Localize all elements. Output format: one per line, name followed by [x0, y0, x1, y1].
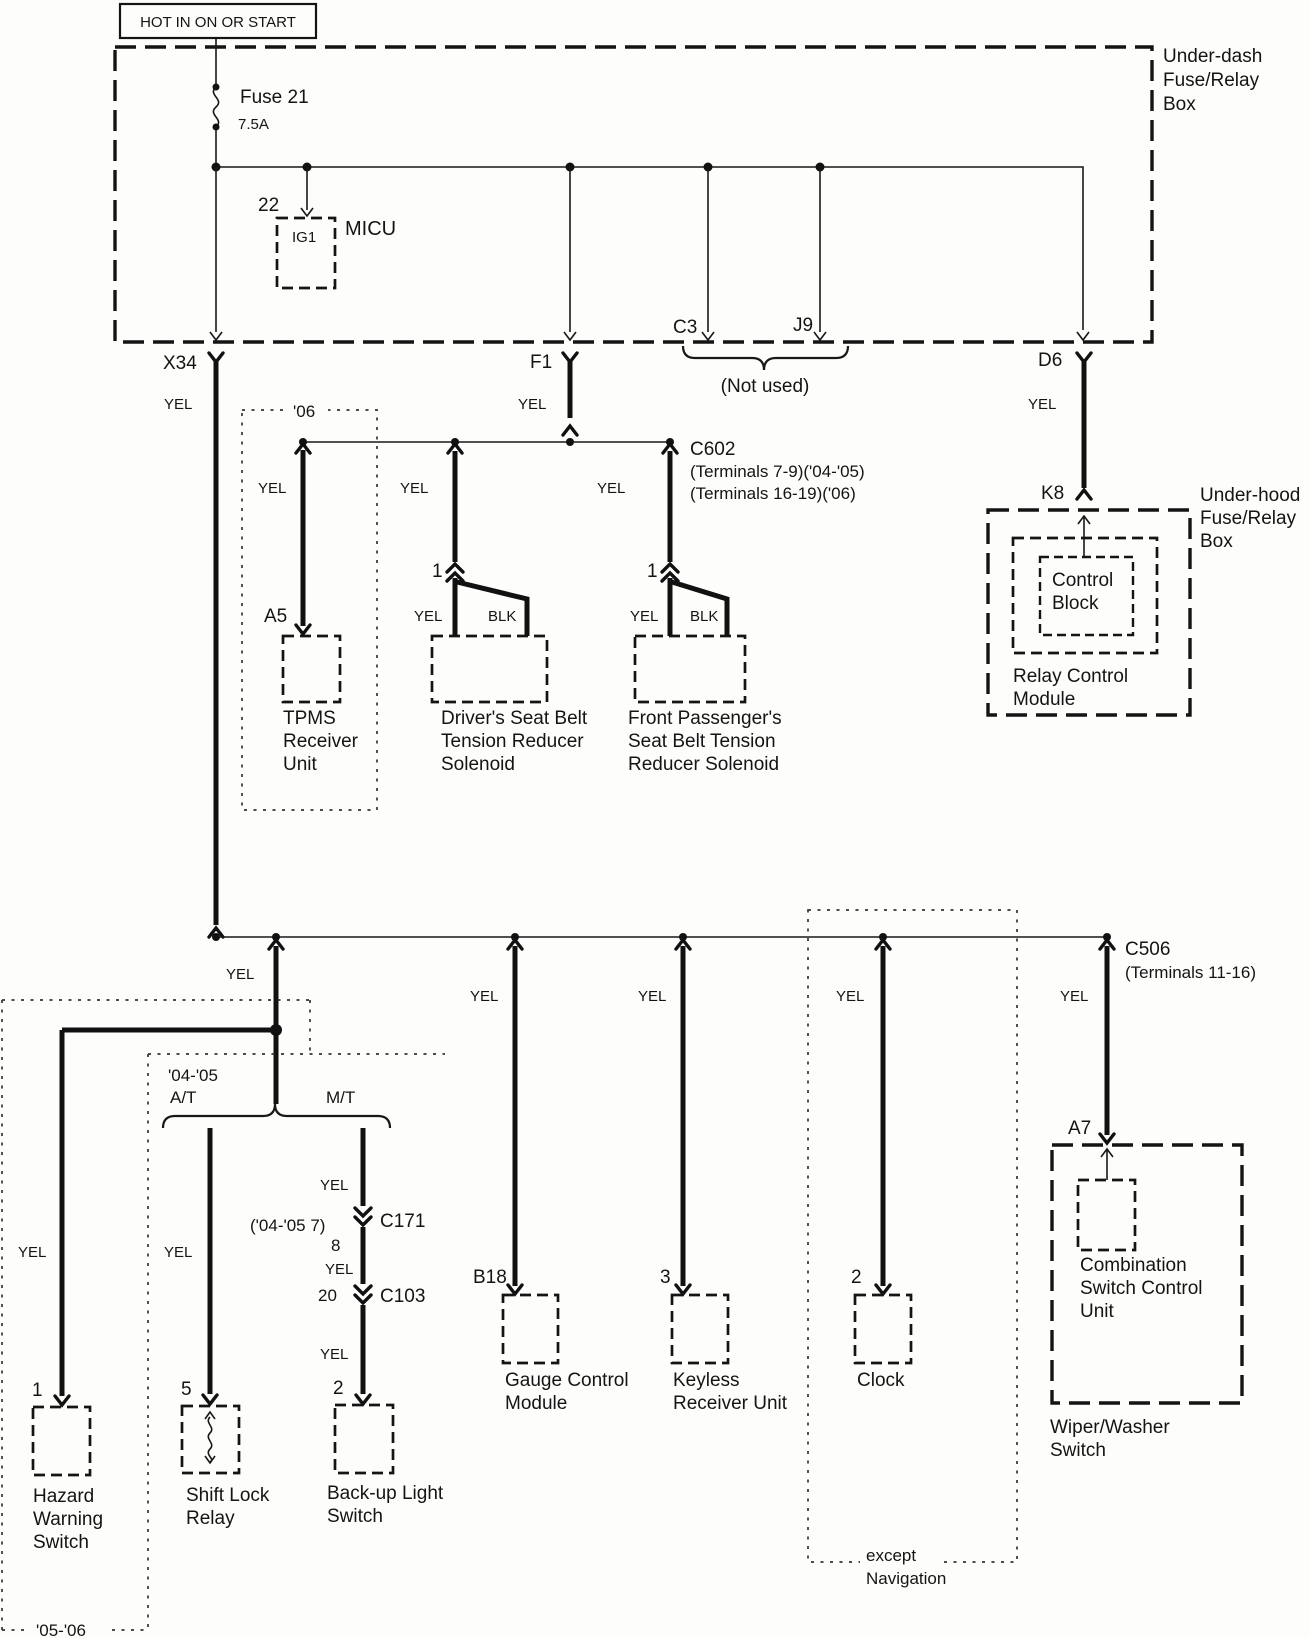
c103-pin-20: 20: [318, 1286, 337, 1305]
hazard-name-1: Hazard: [33, 1486, 94, 1507]
wire-color: YEL: [597, 480, 625, 497]
split-brace: [163, 1104, 390, 1128]
tpms-pin: A5: [264, 606, 287, 627]
wire-color: YEL: [164, 396, 192, 413]
wire-color: YEL: [836, 988, 864, 1005]
hazard-pin: 1: [32, 1380, 43, 1401]
c506-terminals: (Terminals 11-16): [1125, 963, 1256, 982]
year-0405-label: '04-'05: [168, 1066, 218, 1085]
connector-f1: F1: [530, 352, 552, 373]
wire-color: YEL: [325, 1261, 353, 1278]
year-06-label: '06: [293, 402, 315, 421]
connector-fork-icon: [508, 1285, 522, 1294]
arrow-down-icon: [814, 332, 826, 340]
except-nav-label-1: except: [866, 1546, 916, 1565]
wire-color: YEL: [320, 1177, 348, 1194]
junction-dot: [212, 933, 220, 941]
inline-connector-icon: [355, 1286, 371, 1294]
underhood-label-2: Fuse/Relay: [1200, 508, 1297, 529]
inline-connector-icon: [355, 1208, 371, 1216]
tpms-box: [283, 636, 340, 702]
wire-color: BLK: [488, 608, 516, 625]
not-used-brace: [683, 346, 848, 370]
underhood-label-1: Under-hood: [1200, 485, 1300, 506]
keyless-box: [672, 1295, 728, 1363]
mt-label: M/T: [326, 1088, 355, 1107]
at-label: A/T: [170, 1088, 196, 1107]
wire-color: YEL: [1028, 396, 1056, 413]
arrow-down-icon: [702, 332, 714, 340]
clock-name: Clock: [857, 1370, 905, 1391]
hot-feed-label: HOT IN ON OR START: [140, 14, 296, 31]
connector-fork-icon: [1077, 490, 1091, 499]
except-nav-label-2: Navigation: [866, 1569, 946, 1588]
passenger-solenoid-name-1: Front Passenger's: [628, 708, 782, 729]
connector-c103: C103: [380, 1286, 425, 1307]
driver-solenoid-name-2: Tension Reducer: [441, 731, 584, 752]
c171-note: ('04-'05 7): [250, 1216, 325, 1235]
wire-color: YEL: [470, 988, 498, 1005]
year-0506-label: '05-'06: [36, 1621, 86, 1638]
c602-terminals-1: (Terminals 7-9)('04-'05): [690, 462, 865, 481]
connector-c506: C506: [1125, 939, 1170, 960]
wire-color: YEL: [320, 1346, 348, 1363]
combo-name-1: Combination: [1080, 1255, 1187, 1276]
clock-box: [855, 1295, 911, 1363]
micu-pin: 22: [258, 195, 279, 216]
relay-module-label-2: Module: [1013, 689, 1075, 710]
passenger-solenoid-box: [635, 636, 745, 702]
driver-solenoid-name-1: Driver's Seat Belt: [441, 708, 588, 729]
wiring-diagram-page: HOT IN ON OR START Under-dash Fuse/Relay…: [0, 0, 1310, 1638]
fuse-rating: 7.5A: [238, 116, 269, 133]
wire-color: YEL: [638, 988, 666, 1005]
fuse-symbol: [213, 87, 218, 127]
driver-solenoid-pin: 1: [432, 561, 443, 582]
backup-name-2: Switch: [327, 1506, 383, 1527]
shiftlock-name-1: Shift Lock: [186, 1485, 270, 1506]
passenger-solenoid-name-2: Seat Belt Tension: [628, 731, 776, 752]
shiftlock-name-2: Relay: [186, 1508, 235, 1529]
wire-color: YEL: [630, 608, 658, 625]
wire-color: YEL: [400, 480, 428, 497]
passenger-solenoid-pin: 1: [647, 561, 658, 582]
micu-cavity: IG1: [292, 229, 316, 246]
passenger-solenoid-name-3: Reducer Solenoid: [628, 754, 779, 775]
keyless-pin: 3: [660, 1267, 671, 1288]
connector-fork-icon: [296, 625, 310, 634]
arrow-down-icon: [564, 332, 576, 340]
wiper-washer-label-1: Wiper/Washer: [1050, 1417, 1170, 1438]
clock-pin: 2: [851, 1267, 862, 1288]
backup-switch-box: [335, 1405, 393, 1473]
connector-fork-icon: [563, 426, 577, 435]
c602-terminals-2: (Terminals 16-19)('06): [690, 484, 856, 503]
keyless-name-1: Keyless: [673, 1370, 740, 1391]
control-block-label-2: Block: [1052, 593, 1099, 614]
wiring-diagram: HOT IN ON OR START Under-dash Fuse/Relay…: [0, 0, 1310, 1638]
driver-solenoid-box: [432, 636, 547, 702]
tpms-name-3: Unit: [283, 754, 318, 775]
connector-fork-icon: [356, 1395, 370, 1404]
driver-solenoid-name-3: Solenoid: [441, 754, 515, 775]
combo-unit-box: [1078, 1180, 1135, 1250]
connector-fork-icon: [1100, 1134, 1114, 1143]
wire-color: YEL: [164, 1244, 192, 1261]
c171-pin-8: 8: [331, 1236, 340, 1255]
underdash-label-2: Fuse/Relay: [1163, 70, 1260, 91]
tpms-name-2: Receiver: [283, 731, 359, 752]
connector-fork-icon: [203, 1395, 217, 1404]
connector-j9: J9: [793, 315, 813, 336]
wire-color: YEL: [414, 608, 442, 625]
backup-name-1: Back-up Light: [327, 1483, 444, 1504]
wire-color: YEL: [18, 1244, 46, 1261]
relay-coil-icon: [208, 1417, 211, 1462]
gauge-box: [503, 1295, 558, 1363]
connector-fork-icon: [676, 1285, 690, 1294]
connector-fork-icon: [876, 1285, 890, 1294]
hazard-name-2: Warning: [33, 1509, 103, 1530]
gauge-pin: B18: [473, 1267, 507, 1288]
control-block-label-1: Control: [1052, 570, 1113, 591]
keyless-name-2: Receiver Unit: [673, 1393, 788, 1414]
backup-pin: 2: [333, 1378, 344, 1399]
wiper-washer-label-2: Switch: [1050, 1440, 1106, 1461]
tpms-name-1: TPMS: [283, 708, 336, 729]
connector-fork-icon: [55, 1396, 69, 1405]
wire-color: YEL: [518, 396, 546, 413]
arrow-down-icon: [1077, 332, 1089, 340]
combo-name-2: Switch Control: [1080, 1278, 1203, 1299]
junction-dot: [566, 438, 574, 446]
connector-c171: C171: [380, 1211, 425, 1232]
micu-name: MICU: [345, 218, 396, 240]
connector-k8: K8: [1041, 483, 1064, 504]
combo-name-3: Unit: [1080, 1301, 1115, 1322]
underdash-label-1: Under-dash: [1163, 46, 1262, 67]
wire-color: YEL: [1060, 988, 1088, 1005]
internal-bus: [216, 167, 1083, 330]
hazard-name-3: Switch: [33, 1532, 89, 1553]
shiftlock-pin: 5: [181, 1379, 192, 1400]
except-nav-region: [808, 910, 1017, 1562]
gauge-name-2: Module: [505, 1393, 567, 1414]
connector-d6: D6: [1038, 350, 1062, 371]
wire-color: BLK: [690, 608, 718, 625]
combo-pin: A7: [1068, 1118, 1091, 1139]
connector-c3: C3: [673, 317, 697, 338]
connector-x34: X34: [163, 353, 197, 374]
underdash-label-3: Box: [1163, 94, 1196, 115]
gauge-name-1: Gauge Control: [505, 1370, 629, 1391]
relay-module-label-1: Relay Control: [1013, 666, 1128, 687]
underhood-label-3: Box: [1200, 531, 1233, 552]
hazard-switch-box: [33, 1407, 90, 1475]
fuse-name: Fuse 21: [240, 87, 309, 108]
arrow-down-icon: [210, 332, 222, 340]
connector-c602: C602: [690, 439, 735, 460]
not-used-label: (Not used): [721, 376, 810, 397]
wire-color: YEL: [226, 966, 254, 983]
wire-color: YEL: [258, 480, 286, 497]
